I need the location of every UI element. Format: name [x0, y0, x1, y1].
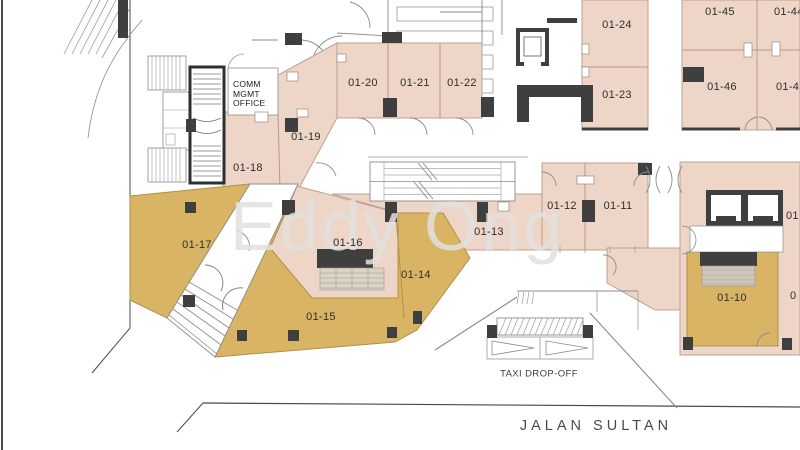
room-label-01-17: 01-17: [182, 239, 212, 251]
room-label-01-22: 01-22: [447, 77, 477, 89]
unit-45-46-block: [682, 0, 800, 130]
floor-plan-drawing: [0, 0, 800, 450]
taxi-drop-off-zone: [435, 291, 677, 408]
lift-shaft-top: [518, 30, 547, 66]
room-label-01-23: 01-23: [602, 89, 632, 101]
room-label-01-21: 01-21: [400, 77, 430, 89]
street-name-label: JALAN SULTAN: [520, 418, 672, 434]
room-label-partial-right-mid: 01: [786, 210, 799, 222]
lobby-wedge: [607, 248, 680, 310]
room-label-01-14: 01-14: [401, 269, 431, 281]
room-label-01-46: 01-46: [707, 81, 737, 93]
counter-unit-10: [700, 252, 757, 286]
room-label-01-16: 01-16: [333, 237, 363, 249]
comm-line-3: OFFICE: [233, 99, 265, 109]
room-label-01-15: 01-15: [306, 311, 336, 323]
room-label-partial-right-lower: 0: [790, 290, 796, 302]
comm-mgmt-office-label: COMM MGMT OFFICE: [233, 80, 265, 109]
room-label-01-44: 01-44: [774, 6, 800, 18]
room-label-01-24: 01-24: [602, 19, 632, 31]
room-label-01-20: 01-20: [348, 77, 378, 89]
room-label-01-18: 01-18: [233, 162, 263, 174]
service-core: [517, 85, 593, 122]
room-label-01-13: 01-13: [474, 226, 504, 238]
floor-plan: Eddy Ong 01-10 01-11 01-12 01-13 01-14 0…: [0, 0, 800, 450]
room-label-01-47: 01-47: [776, 81, 800, 93]
room-label-01-10: 01-10: [717, 292, 747, 304]
stair-core: [148, 56, 224, 183]
room-label-01-19: 01-19: [291, 131, 321, 143]
room-label-01-45: 01-45: [705, 6, 735, 18]
room-label-01-11: 01-11: [604, 200, 633, 212]
escalator: [368, 157, 528, 201]
taxi-drop-off-label: TAXI DROP-OFF: [500, 369, 578, 380]
room-label-01-12: 01-12: [547, 200, 577, 212]
